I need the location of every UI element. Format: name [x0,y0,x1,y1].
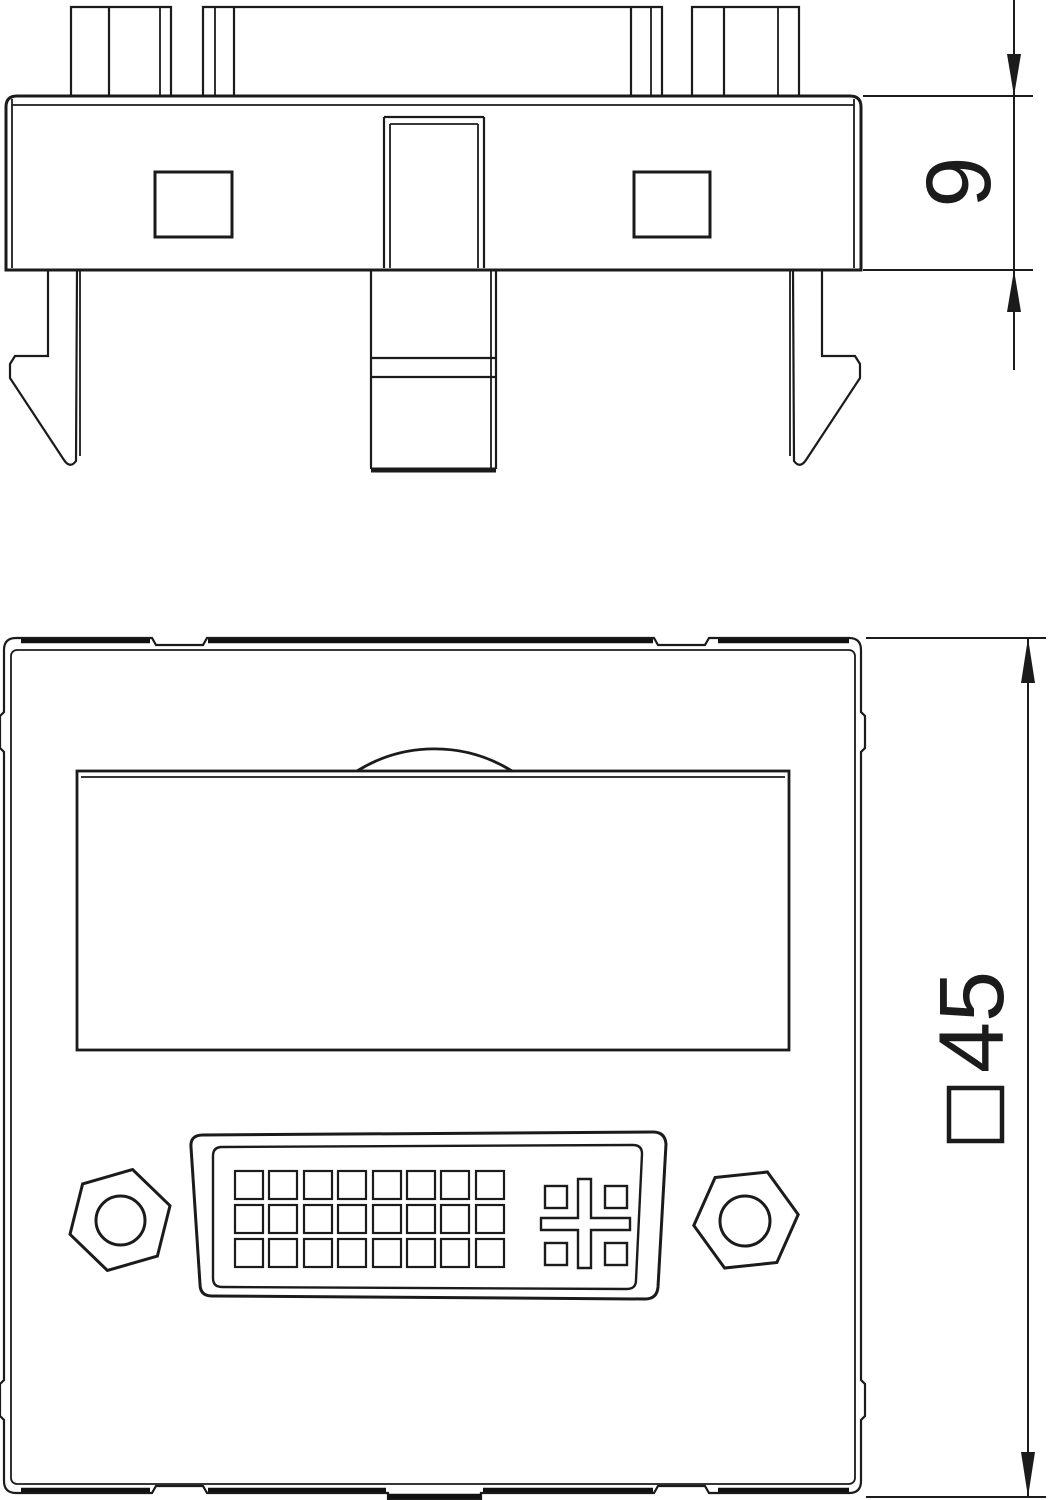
plate-outer-contour [0,638,865,1499]
dvi-pin [269,1171,297,1199]
dvi-analog-pin [605,1186,627,1208]
hex-nut-left [70,1170,170,1271]
dvi-ground-cross [541,1179,630,1268]
dvi-analog-pin [545,1243,567,1265]
side-window-left [155,172,232,237]
dvi-pin [441,1171,469,1199]
dvi-pin [441,1239,469,1267]
dimension-side-height: 9 [863,0,1033,370]
dimension-front-size: 45 [866,638,1046,1497]
dim-arrow-up [1021,638,1035,683]
dvi-pin [476,1239,504,1267]
dim-arrow-up [1007,270,1021,312]
dvi-pin [304,1205,332,1233]
dvi-pin [269,1239,297,1267]
dvi-pin [407,1171,435,1199]
dvi-pin [338,1205,366,1233]
hex-nut-left-bore [96,1196,145,1245]
dvi-pin [407,1205,435,1233]
dvi-pin [235,1171,263,1199]
dvi-pin [304,1239,332,1267]
dvi-pin [373,1171,401,1199]
dvi-pin [338,1171,366,1199]
dvi-socket [70,1132,798,1299]
label-field-frame [77,771,789,1050]
latch-left [10,270,77,465]
dvi-pin-grid [235,1171,504,1267]
dvi-pin [441,1205,469,1233]
technical-drawing: 9 [0,0,1048,1500]
hex-nut-left-body [70,1170,170,1271]
block-center [203,7,662,96]
block-right [692,7,799,96]
drawing-canvas: 9 [0,0,1048,1500]
dvi-pin [407,1239,435,1267]
side-center-channel [384,117,484,268]
dim-label-9: 9 [908,156,1010,207]
plate-inner-face [11,650,855,1484]
latch-right [793,270,860,465]
dvi-pin [304,1171,332,1199]
dvi-pin [476,1171,504,1199]
square-symbol [949,1088,1002,1141]
dvi-pin [373,1239,401,1267]
dvi-pin [373,1205,401,1233]
finger-notch-arc [357,749,512,771]
dvi-pin [269,1205,297,1233]
hex-nut-right-body [694,1172,798,1268]
label-field [77,749,789,1050]
side-center-strap [371,270,496,470]
dvi-analog-pin [605,1243,627,1265]
hex-nut-right-bore [720,1196,770,1246]
front-view [0,638,865,1499]
dvi-pin [235,1205,263,1233]
dvi-analog-pin [545,1186,567,1208]
block-left [71,7,171,96]
side-view [6,7,861,470]
dvi-pin [476,1205,504,1233]
dvi-pin [235,1239,263,1267]
dvi-pin [338,1239,366,1267]
side-view-top-blocks [71,7,799,96]
dim-label-45: 45 [921,971,1023,1073]
dim-arrow-down [1007,54,1021,96]
dim-arrow-down [1021,1452,1035,1497]
dvi-analog-section [541,1179,630,1268]
side-body-outline [6,96,861,270]
hex-nut-right [694,1172,798,1268]
plate-tab-bands [21,641,849,1496]
side-window-right [634,172,710,237]
